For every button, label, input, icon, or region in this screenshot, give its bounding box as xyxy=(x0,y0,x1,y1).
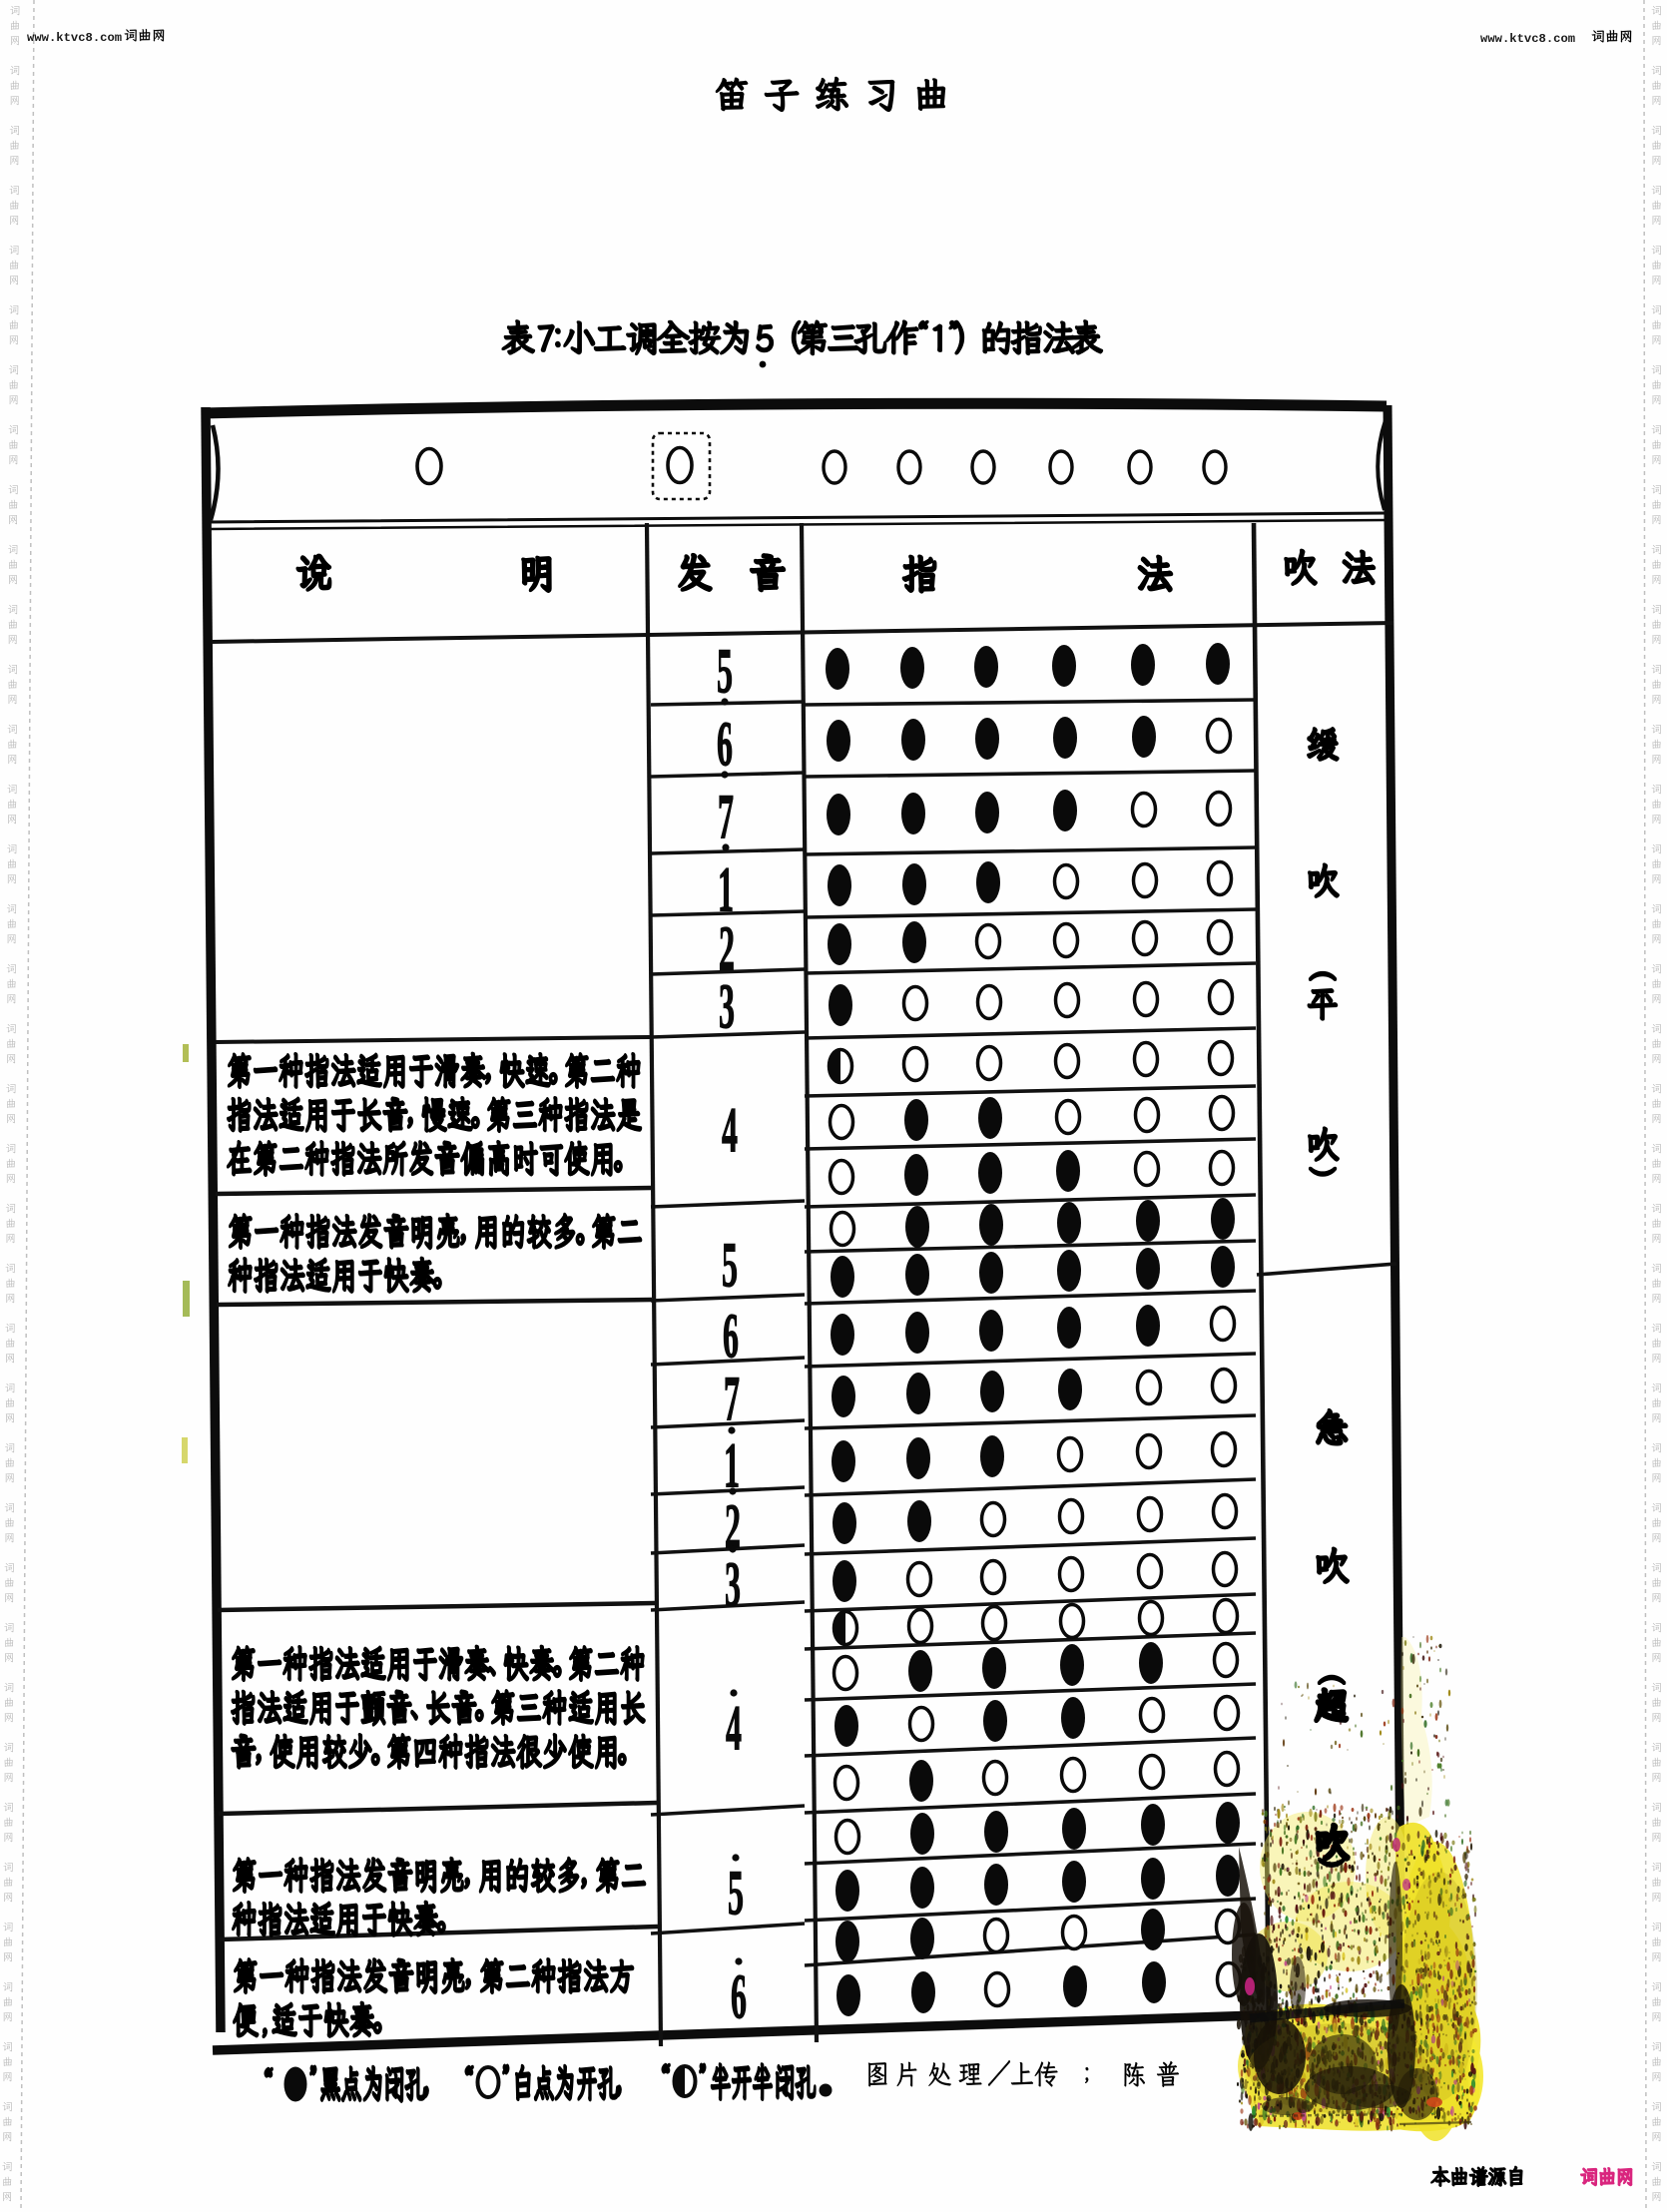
svg-text:www.ktvc8.com: www.ktvc8.com xyxy=(1480,32,1575,46)
svg-text:www.ktvc8.com: www.ktvc8.com xyxy=(27,31,122,45)
